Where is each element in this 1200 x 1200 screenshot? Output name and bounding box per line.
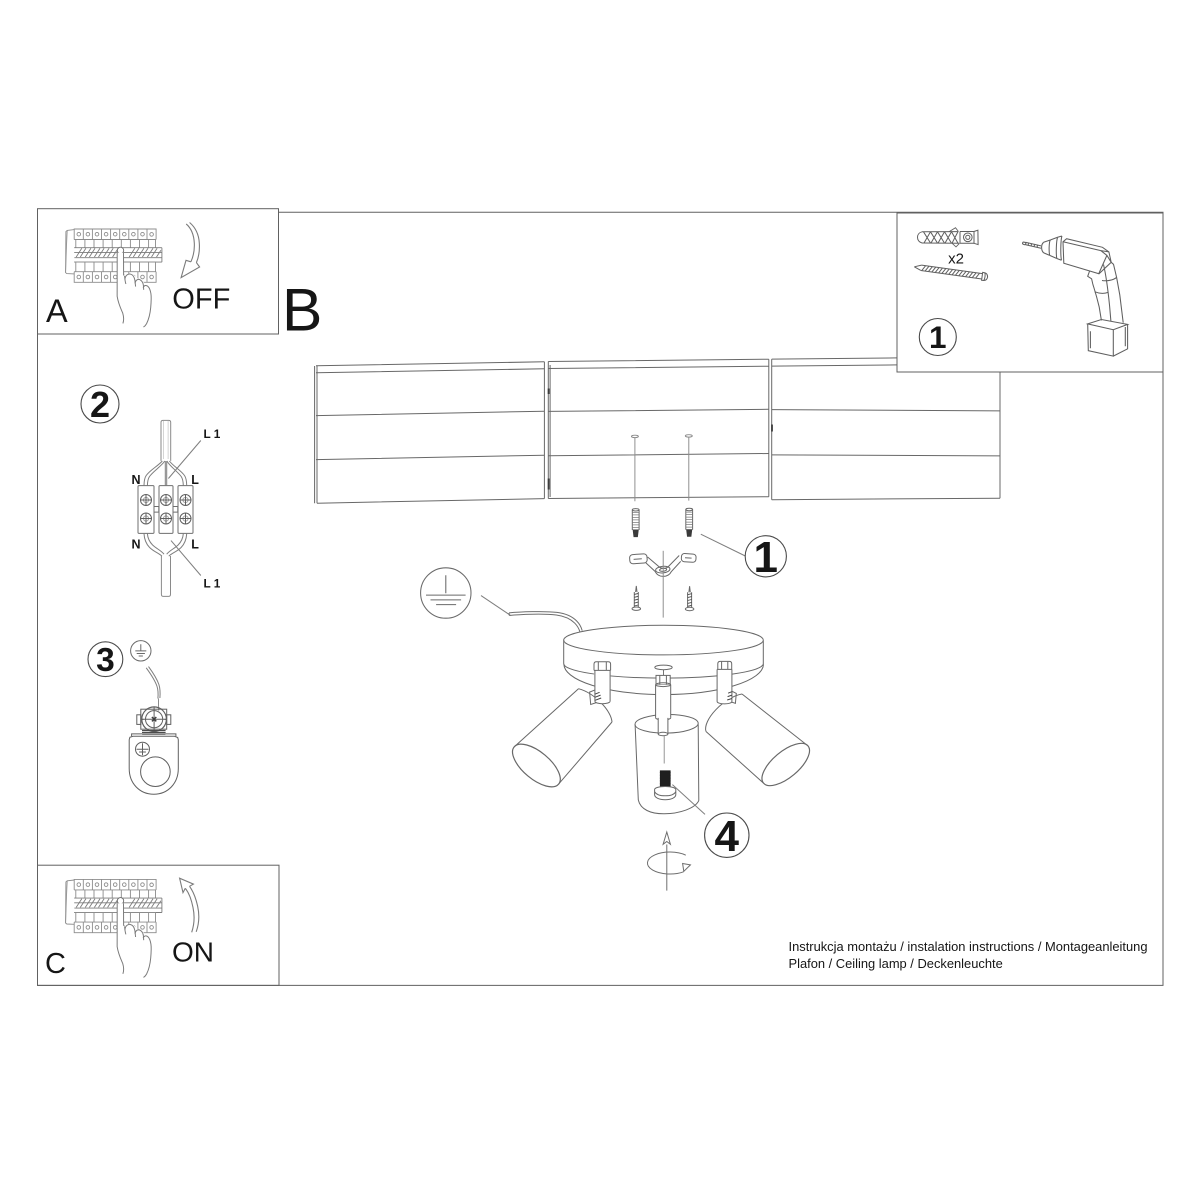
svg-text:3: 3 xyxy=(96,642,115,679)
svg-text:1: 1 xyxy=(754,533,778,582)
svg-text:1: 1 xyxy=(929,319,947,355)
svg-text:L 1: L 1 xyxy=(204,576,221,590)
svg-text:B: B xyxy=(282,275,322,343)
svg-text:x2: x2 xyxy=(948,250,964,267)
svg-text:N: N xyxy=(132,537,141,551)
svg-text:Plafon / Ceiling lamp / Decken: Plafon / Ceiling lamp / Deckenleuchte xyxy=(789,956,1003,971)
svg-text:OFF: OFF xyxy=(172,283,230,315)
svg-text:4: 4 xyxy=(715,812,740,861)
svg-text:N: N xyxy=(132,473,141,487)
svg-text:ON: ON xyxy=(172,936,214,967)
svg-text:Instrukcja montażu / instalati: Instrukcja montażu / instalation instruc… xyxy=(789,939,1148,954)
svg-text:L 1: L 1 xyxy=(204,427,221,441)
svg-text:2: 2 xyxy=(90,384,110,425)
svg-text:C: C xyxy=(45,948,66,980)
svg-text:A: A xyxy=(46,293,68,329)
svg-text:L: L xyxy=(191,537,199,551)
svg-text:L: L xyxy=(191,473,199,487)
